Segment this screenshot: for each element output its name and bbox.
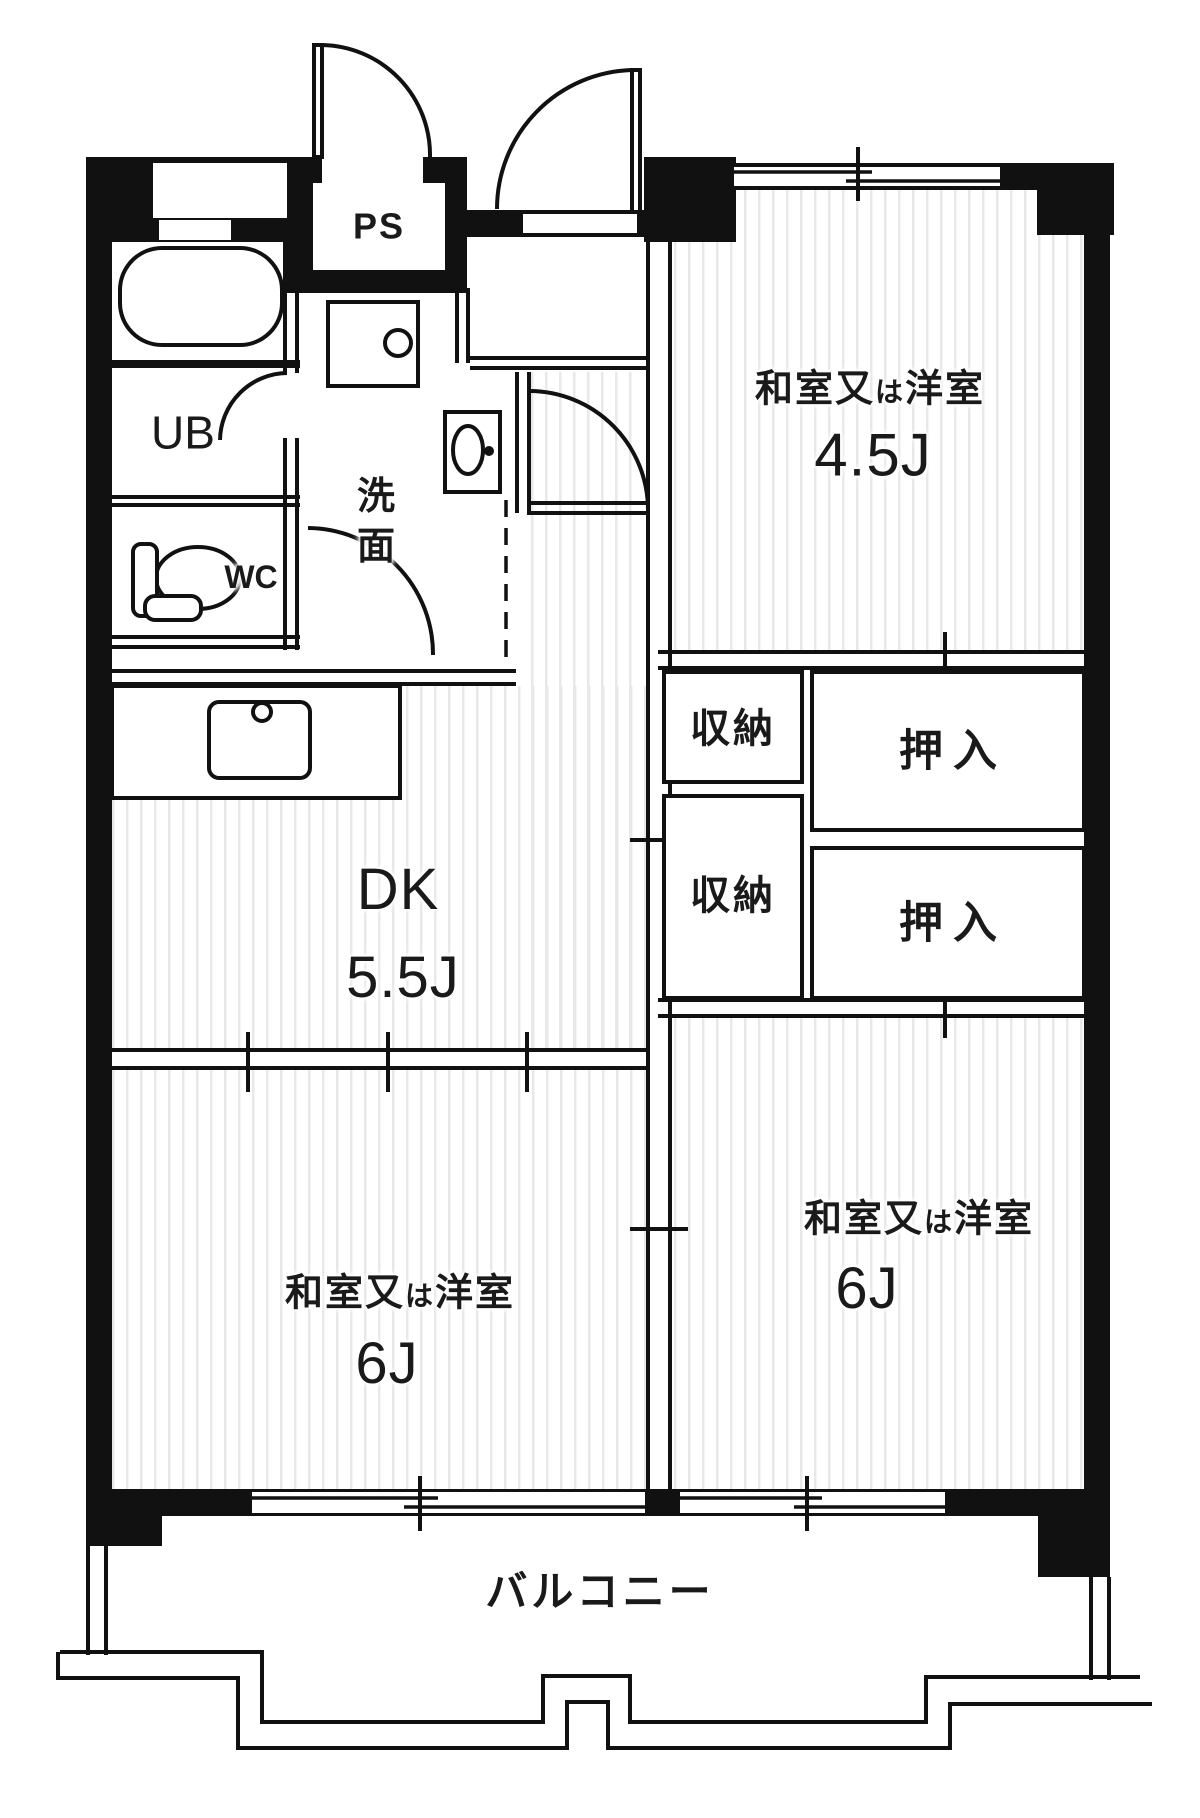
room-northeast-label-p2: は xyxy=(875,376,905,407)
room-southwest-label-p2: は xyxy=(405,1280,435,1311)
bathtub-icon xyxy=(120,248,282,345)
label-ps: PS xyxy=(353,204,405,249)
room-northeast-label-p3: 洋室 xyxy=(905,368,985,410)
room-southeast-label-p3: 洋室 xyxy=(954,1198,1034,1240)
closet-upper-label: 収納 xyxy=(690,704,776,754)
closet-lower-label: 収納 xyxy=(690,871,776,921)
washing-machine-icon xyxy=(328,302,418,386)
floorplan-graphics xyxy=(0,0,1200,1818)
door-swing-corridor xyxy=(530,391,648,510)
room-northeast-label: 和室又は洋室 xyxy=(755,319,985,414)
room-northeast-size: 4.5J xyxy=(814,418,931,493)
label-wc: WC xyxy=(224,557,277,597)
room-dk-size: 5.5J xyxy=(346,942,460,1015)
label-washroom: 洗 面 xyxy=(357,472,395,572)
oshiire-lower-label: 押入 xyxy=(899,896,1007,951)
room-southeast-label-p1: 和室又 xyxy=(804,1198,924,1240)
room-southwest-label-p3: 洋室 xyxy=(435,1272,515,1314)
door-swing-entrance xyxy=(497,70,640,212)
label-balcony: バルコニー xyxy=(485,1566,714,1619)
label-ub: UB xyxy=(151,404,215,462)
washbasin-icon xyxy=(445,412,500,492)
room-northeast-label-p1: 和室又 xyxy=(755,368,875,410)
room-southeast-label: 和室又は洋室 xyxy=(804,1149,1034,1244)
floor-plan: PS UB WC 洗 面 和室又は洋室 4.5J 収納 収納 押入 押入 DK … xyxy=(0,0,1200,1818)
room-southeast-label-p2: は xyxy=(924,1206,954,1237)
door-swing-ps xyxy=(314,45,430,157)
room-southeast-size: 6J xyxy=(835,1253,898,1326)
room-southwest-label: 和室又は洋室 xyxy=(285,1223,515,1318)
door-swing-ub xyxy=(220,373,287,440)
room-dk-name: DK xyxy=(357,854,440,927)
oshiire-upper-label: 押入 xyxy=(899,724,1007,779)
room-southwest-size: 6J xyxy=(355,1328,418,1401)
kitchen-counter-icon xyxy=(112,686,400,798)
room-southwest-label-p1: 和室又 xyxy=(285,1272,405,1314)
